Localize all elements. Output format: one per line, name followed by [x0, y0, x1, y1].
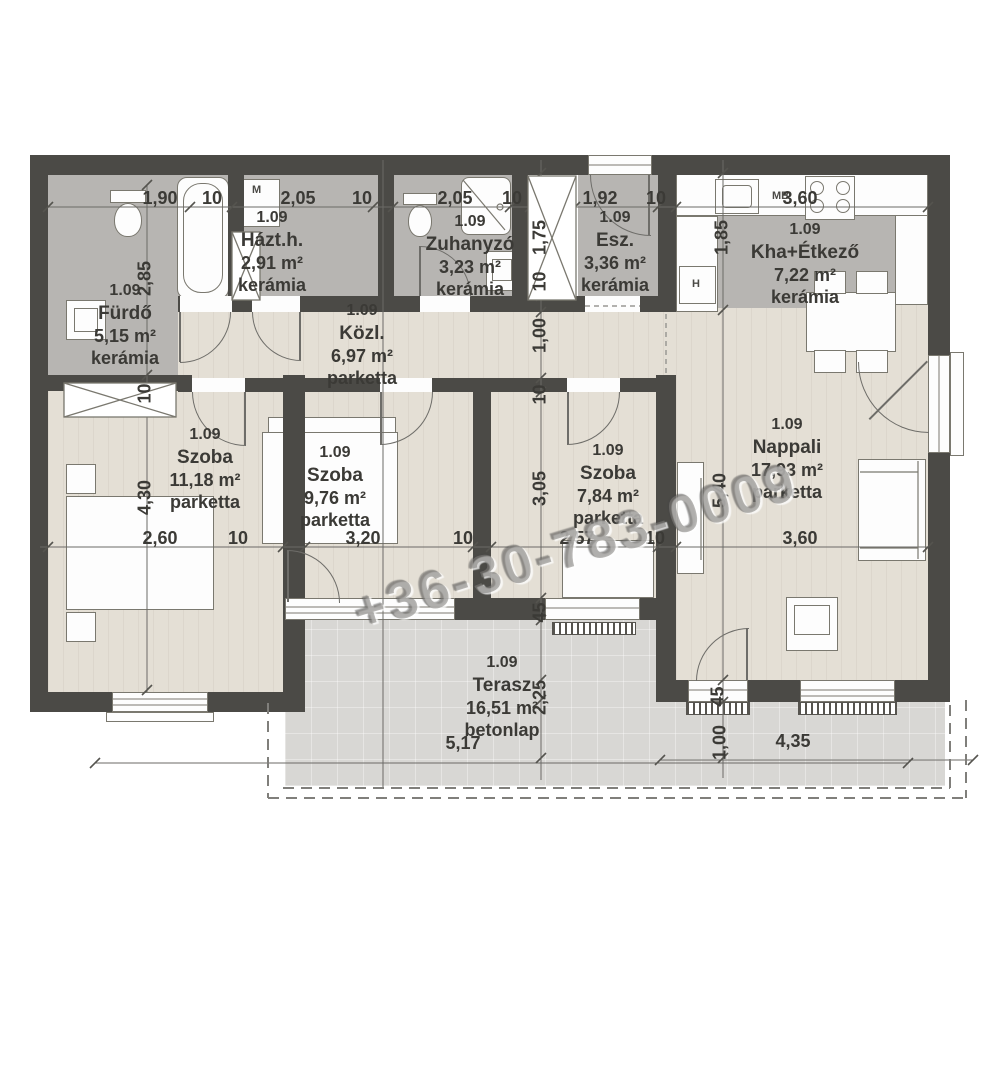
dimension-label: 4,35 — [763, 731, 823, 752]
dimension-label: 10 — [182, 188, 242, 209]
dimension-label: 5,17 — [433, 733, 493, 754]
wardrobe-icon — [64, 383, 176, 417]
dimension-label: 3,60 — [770, 528, 830, 549]
dimension-label: 2,05 — [425, 188, 485, 209]
dimension-label: 1,85 — [712, 208, 733, 268]
room-label-kitchen: 1.09 Kha+Étkező 7,22 m² kerámia — [730, 219, 880, 308]
room-label-entry: 1.09 Esz. 3,36 m² kerámia — [540, 207, 690, 296]
dimension-label: 10 — [626, 188, 686, 209]
dimension-label: 10 — [135, 364, 156, 424]
terrace-dashed-boundary — [268, 700, 966, 798]
door-leaf — [746, 628, 748, 680]
dimension-label: 3,05 — [530, 459, 551, 519]
dimension-label: 2,25 — [530, 668, 551, 728]
dimension-label: 4,30 — [135, 468, 156, 528]
room-label-bedroom2: 1.09 Szoba 9,76 m² parketta — [260, 442, 410, 531]
dimension-label: 1,90 — [130, 188, 190, 209]
door-leaf — [380, 392, 382, 444]
dimension-label: 2,05 — [268, 188, 328, 209]
room-label-shower: 1.09 Zuhanyzó 3,23 m² kerámia — [395, 211, 545, 300]
dimension-label: 1,00 — [530, 306, 551, 366]
dimension-label: 10 — [332, 188, 392, 209]
dimension-label: 3,60 — [770, 188, 830, 209]
door-leaf — [287, 550, 289, 602]
room-label-bathroom: 1.09 Fürdő 5,15 m² kerámia — [50, 280, 200, 369]
floor-plan-canvas: M MB H 1.09 Fürdő 5,15 m² kerámia 1.09 H… — [0, 0, 1000, 1066]
room-label-terrace: 1.09 Terasz 16,51 m² betonlap — [427, 652, 577, 741]
threshold-dashes — [585, 306, 666, 376]
door-leaf — [567, 392, 569, 444]
room-label-corridor: 1.09 Közl. 6,97 m² parketta — [287, 300, 437, 389]
dimension-label: 2,85 — [135, 249, 156, 309]
dimension-label: 2,60 — [130, 528, 190, 549]
dimension-label: 1,00 — [710, 713, 731, 773]
dimension-label: 1,92 — [570, 188, 630, 209]
dimension-label: 10 — [208, 528, 268, 549]
dimension-label: 10 — [482, 188, 542, 209]
dimension-label: 3,20 — [333, 528, 393, 549]
room-label-utility: 1.09 Házt.h. 2,91 m² kerámia — [197, 207, 347, 296]
dimension-label: 10 — [530, 365, 551, 425]
dimension-label: 10 — [530, 252, 551, 312]
